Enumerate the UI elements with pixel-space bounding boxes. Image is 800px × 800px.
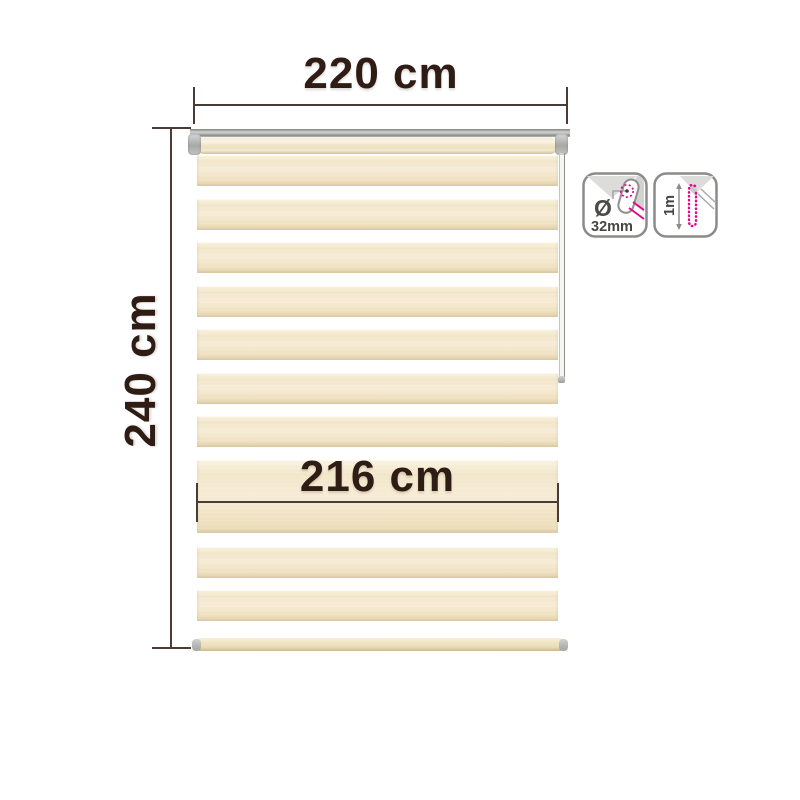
diameter-symbol: Ø xyxy=(594,195,612,221)
fabric-stripe xyxy=(197,286,558,317)
fabric-width-label: 216 cm xyxy=(197,452,558,502)
fabric-roll xyxy=(196,137,558,154)
bottom-rail-cap-left xyxy=(192,639,201,651)
bead-chain xyxy=(559,153,565,378)
width-dimension-label: 220 cm xyxy=(194,49,568,99)
head-rail xyxy=(190,129,570,137)
fabric-stripe xyxy=(197,199,558,230)
fabric-width-line xyxy=(198,501,558,503)
roll-end-cap-right xyxy=(555,134,568,155)
height-dimension-line xyxy=(170,128,172,649)
roll-end-cap-left xyxy=(188,134,201,155)
fabric-width-tick-left xyxy=(196,483,198,522)
width-dimension-tick-right xyxy=(566,87,568,124)
height-dimension-tick-bottom xyxy=(152,647,191,649)
width-dimension-tick-left xyxy=(193,87,195,124)
tube-diameter-value: 32mm xyxy=(591,219,633,235)
spec-icons: Ø 32mm 1m xyxy=(582,172,722,238)
fabric-stripe xyxy=(197,155,558,186)
fabric-stripe xyxy=(197,373,558,404)
bead-chain-connector xyxy=(558,376,565,383)
chain-length-value: 1m xyxy=(662,195,678,216)
product-dimension-diagram: 220 cm 240 cm 216 cm xyxy=(0,0,800,800)
height-dimension-label: 240 cm xyxy=(116,292,166,447)
width-dimension-line xyxy=(194,104,568,106)
fabric-stripe xyxy=(197,547,558,578)
tube-diameter-icon: Ø 32mm xyxy=(582,172,648,238)
height-dimension-tick-top xyxy=(152,127,191,129)
fabric-stripe xyxy=(197,329,558,360)
fabric-panel xyxy=(197,155,558,625)
fabric-stripe xyxy=(197,416,558,447)
bottom-rail xyxy=(194,638,566,651)
fabric-stripe xyxy=(197,590,558,621)
chain-length-icon: 1m xyxy=(653,172,718,238)
bottom-rail-cap-right xyxy=(559,639,568,651)
fabric-stripe xyxy=(197,242,558,273)
fabric-width-tick-right xyxy=(557,483,559,522)
